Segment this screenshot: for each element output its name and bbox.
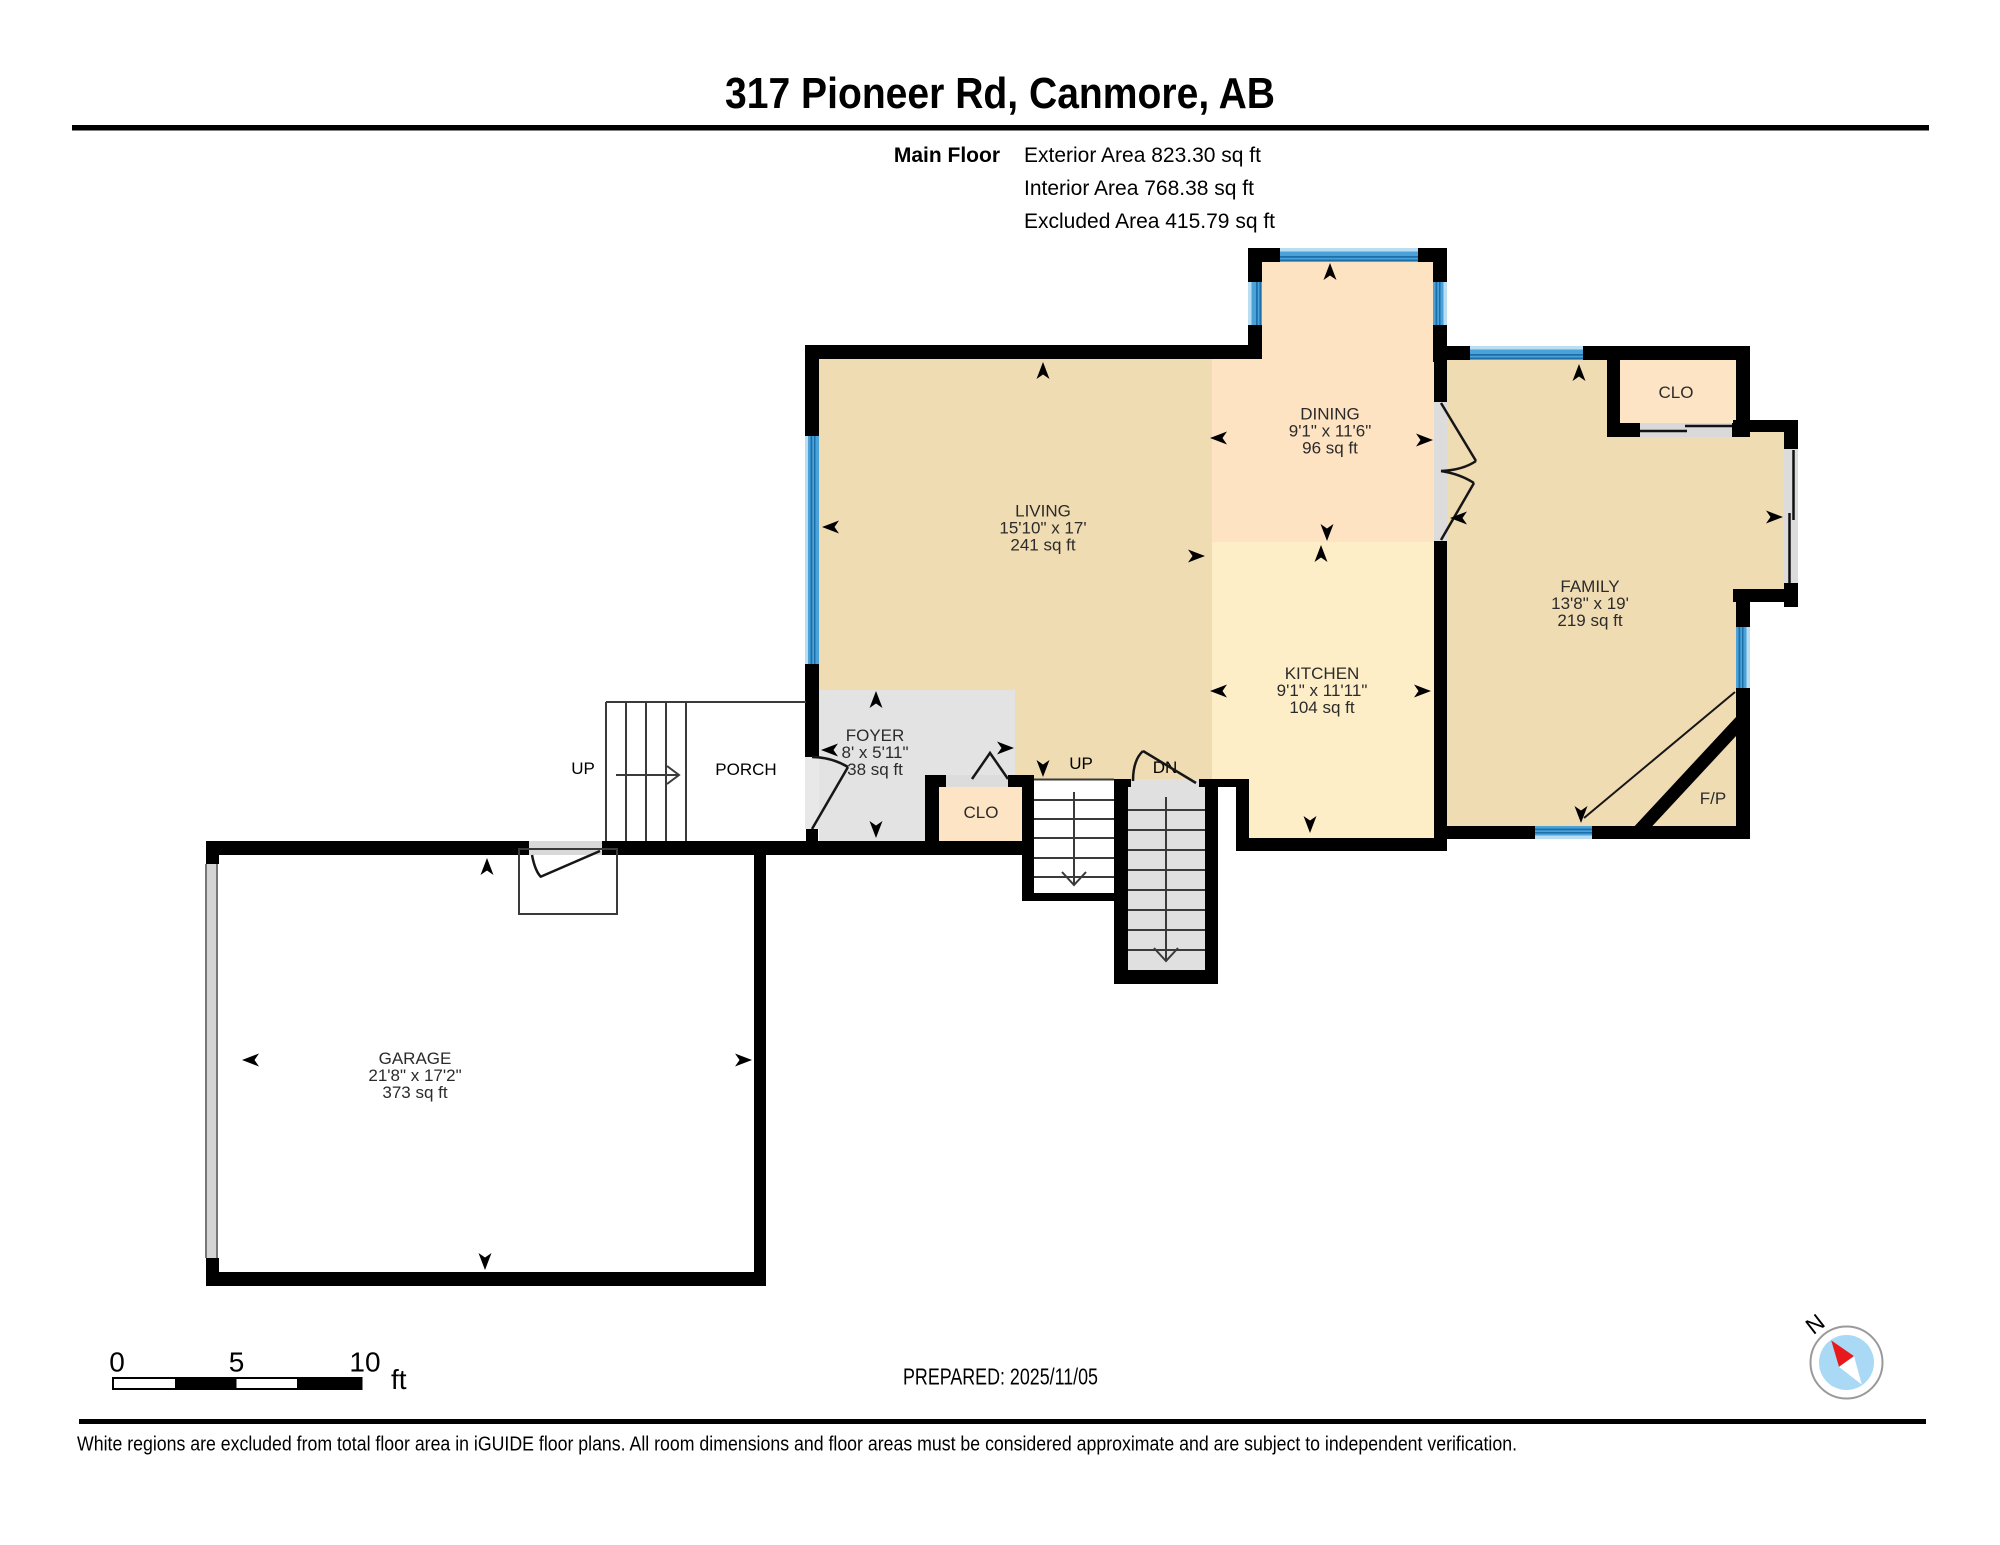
svg-text:CLO: CLO xyxy=(964,803,999,822)
svg-text:219 sq ft: 219 sq ft xyxy=(1557,611,1622,630)
svg-text:Excluded Area 415.79 sq ft: Excluded Area 415.79 sq ft xyxy=(1024,210,1275,233)
svg-text:PORCH: PORCH xyxy=(715,760,776,779)
svg-text:PREPARED: 2025/11/05: PREPARED: 2025/11/05 xyxy=(903,1364,1098,1390)
svg-text:104 sq ft: 104 sq ft xyxy=(1289,698,1354,717)
svg-text:UP: UP xyxy=(1069,754,1093,773)
svg-text:White regions are excluded fro: White regions are excluded from total fl… xyxy=(77,1434,1517,1456)
svg-text:241 sq ft: 241 sq ft xyxy=(1010,536,1075,555)
svg-text:DN: DN xyxy=(1153,758,1178,777)
svg-text:UP: UP xyxy=(571,759,595,778)
svg-text:38 sq ft: 38 sq ft xyxy=(847,760,903,779)
svg-text:Exterior Area 823.30 sq ft: Exterior Area 823.30 sq ft xyxy=(1024,144,1261,167)
svg-text:ft: ft xyxy=(391,1364,407,1395)
svg-text:Main Floor: Main Floor xyxy=(894,144,1000,167)
svg-text:96 sq ft: 96 sq ft xyxy=(1302,439,1358,458)
svg-text:CLO: CLO xyxy=(1659,383,1694,402)
svg-text:Interior Area 768.38 sq ft: Interior Area 768.38 sq ft xyxy=(1024,177,1254,200)
svg-text:0: 0 xyxy=(109,1347,125,1378)
svg-text:5: 5 xyxy=(229,1347,245,1378)
svg-text:F/P: F/P xyxy=(1700,789,1726,808)
svg-text:317 Pioneer Rd, Canmore, AB: 317 Pioneer Rd, Canmore, AB xyxy=(725,69,1275,118)
svg-text:10: 10 xyxy=(349,1347,380,1378)
svg-text:373 sq ft: 373 sq ft xyxy=(382,1083,447,1102)
